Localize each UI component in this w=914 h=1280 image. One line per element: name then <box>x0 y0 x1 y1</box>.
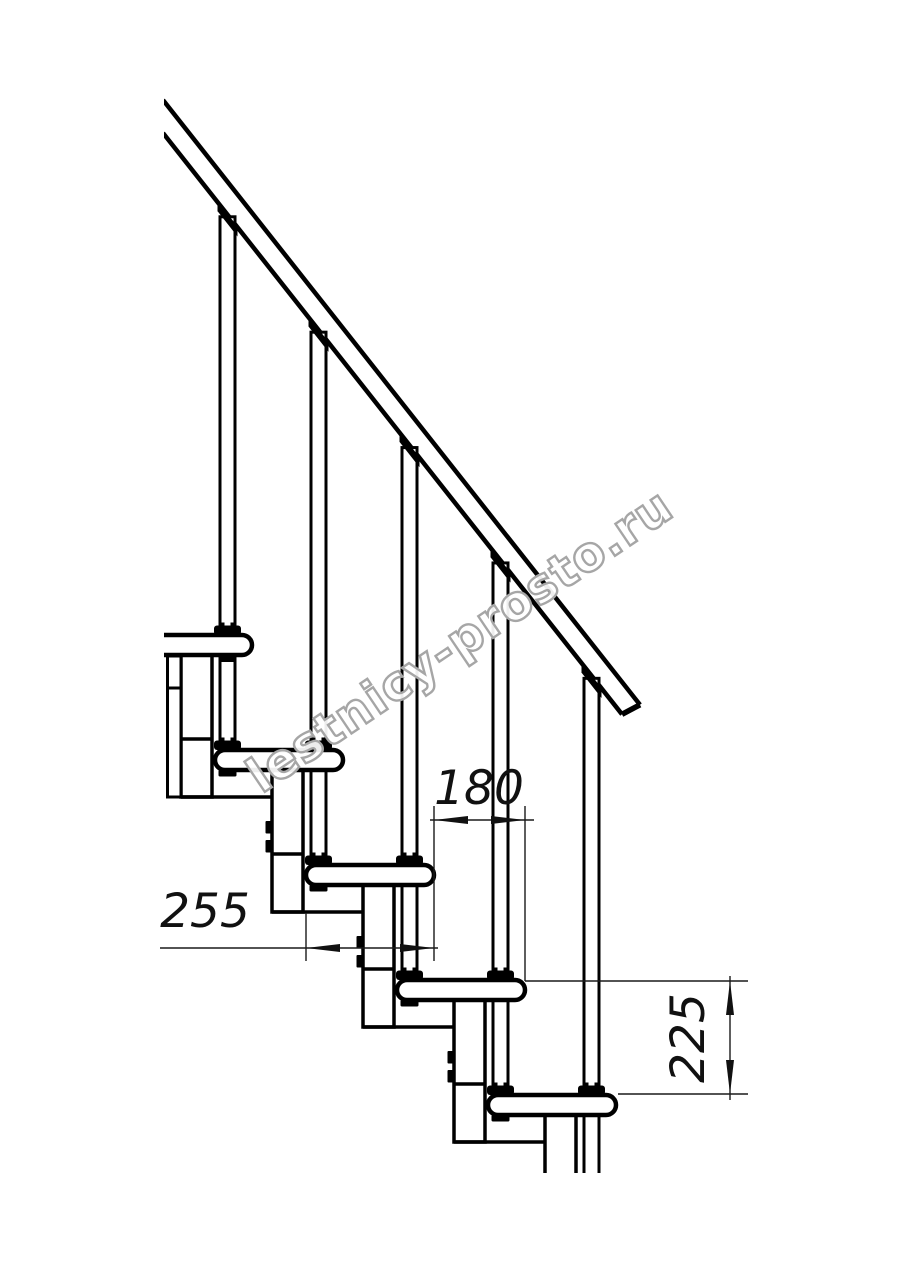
bolt-head-icon <box>504 968 509 972</box>
bolt-icon <box>266 840 274 853</box>
bolt-head-icon <box>504 1083 509 1087</box>
standoff-post-5 <box>584 1115 599 1183</box>
standoff-post-2 <box>311 770 326 865</box>
drawing-canvas: 180255225lestnicy-prosto.ru <box>0 0 914 1280</box>
tread-3 <box>306 865 434 885</box>
bolt-head-icon <box>231 738 236 742</box>
baluster-base-fitting <box>487 971 514 981</box>
through-bolt-nut <box>219 770 237 777</box>
cut-module-flange <box>168 656 182 797</box>
tread-1 <box>124 635 252 655</box>
baluster-base-fitting <box>396 856 423 866</box>
bolt-head-icon <box>220 623 225 627</box>
tread-4 <box>397 980 525 1000</box>
baluster-base-fitting <box>578 1086 605 1096</box>
baluster-1 <box>220 217 235 635</box>
dimension-arrow-icon <box>726 981 734 1015</box>
dimension-label-step-rise: 225 <box>661 993 716 1083</box>
tread-5 <box>488 1095 616 1115</box>
post-landing-fitting <box>214 741 241 751</box>
bolt-head-icon <box>231 623 236 627</box>
dimension-arrow-icon <box>306 944 340 952</box>
post-landing-fitting <box>487 1086 514 1096</box>
bolt-head-icon <box>220 738 225 742</box>
dimension-step-run: 180 <box>430 761 534 981</box>
standoff-post-4 <box>493 1000 508 1095</box>
watermark-text: lestnicy-prosto.ru <box>237 478 683 804</box>
bolt-icon <box>448 1051 456 1064</box>
bolt-head-icon <box>402 968 407 972</box>
staircase-elevation-drawing: 180255225lestnicy-prosto.ru <box>0 0 914 1280</box>
through-bolt-nut <box>492 1115 510 1122</box>
through-bolt-nut <box>310 885 328 892</box>
dimension-arrow-icon <box>726 1060 734 1094</box>
bolt-head-icon <box>584 1083 589 1087</box>
post-landing-fitting <box>396 971 423 981</box>
bolt-head-icon <box>595 1083 600 1087</box>
bolt-head-icon <box>402 853 407 857</box>
through-bolt-nut <box>401 1000 419 1007</box>
post-landing-fitting <box>305 856 332 866</box>
support-column-1 <box>181 655 212 797</box>
bolt-icon <box>448 1070 456 1083</box>
bolt-icon <box>357 936 365 949</box>
baluster-base-fitting <box>214 626 241 636</box>
bolt-head-icon <box>413 853 418 857</box>
dimension-label-tread-depth: 255 <box>160 884 250 939</box>
dimension-label-step-run: 180 <box>434 761 524 816</box>
bolt-icon <box>266 821 274 834</box>
baluster-2 <box>311 332 326 750</box>
bolt-head-icon <box>493 1083 498 1087</box>
support-column-4 <box>454 1000 485 1142</box>
standoff-post-1 <box>220 655 235 750</box>
standoff-post-3 <box>402 885 417 980</box>
bolt-head-icon <box>413 968 418 972</box>
baluster-5 <box>584 678 599 1095</box>
bolt-head-icon <box>322 853 327 857</box>
dimension-step-rise: 225 <box>525 976 748 1100</box>
support-column-5 <box>545 1115 576 1257</box>
bolt-head-icon <box>311 853 316 857</box>
dimension-arrow-icon <box>434 816 468 824</box>
support-column-3 <box>363 885 394 1027</box>
bolt-head-icon <box>493 968 498 972</box>
bolt-icon <box>357 955 365 968</box>
